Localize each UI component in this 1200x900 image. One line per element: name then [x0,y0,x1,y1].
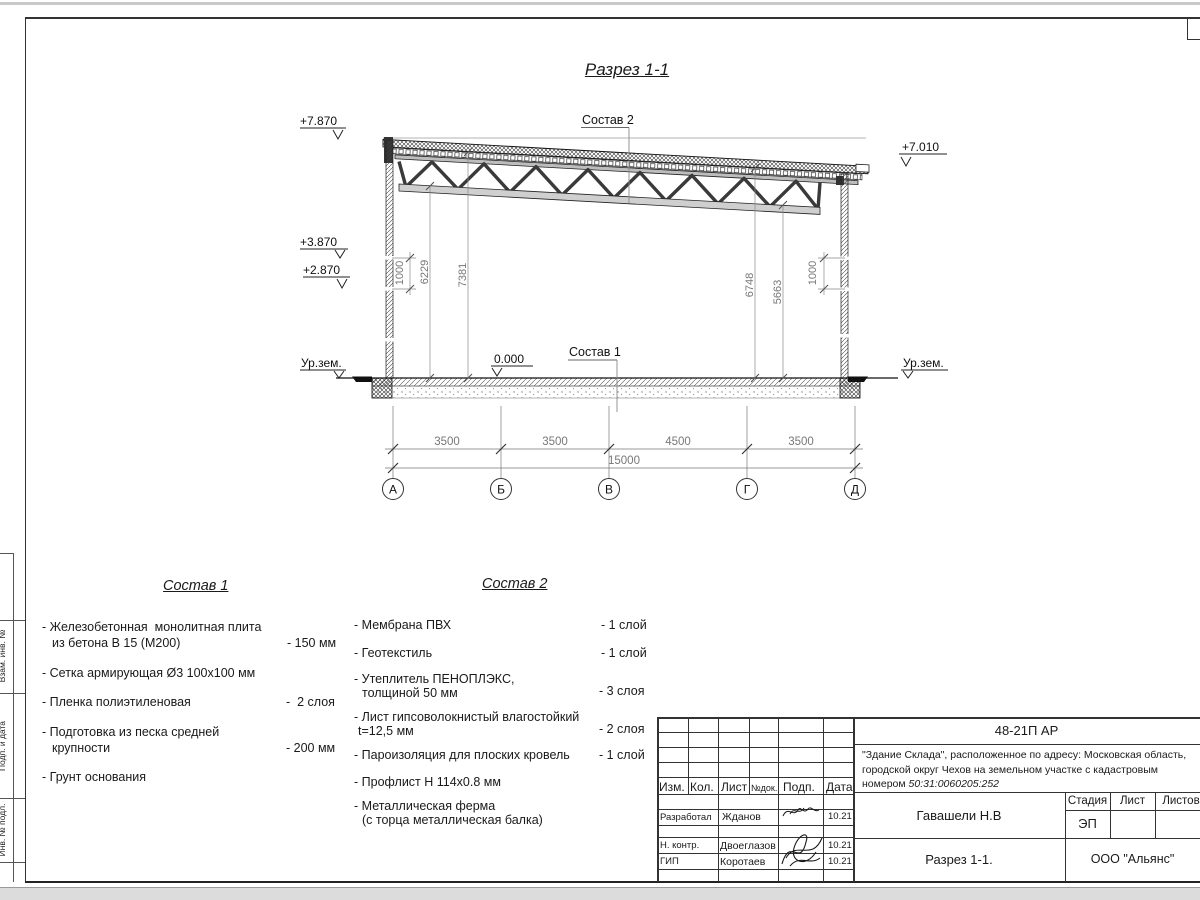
svg-text:1000: 1000 [394,261,406,285]
list-item: - Пароизоляция для плоских кровель [354,748,570,762]
list-item: - Пленка полиэтиленовая [42,695,191,709]
signature-razrabotal [780,802,822,822]
frame-top [25,17,1200,19]
svg-text:6229: 6229 [419,260,431,284]
side-label-inv: Инв. № подл. [0,800,9,860]
svg-text:0.000: 0.000 [494,352,524,366]
sostav1-heading: Состав 1 [163,578,228,595]
list-item: - Сетка армирующая Ø3 100x100 мм [42,666,255,680]
elevation-wall-mid: +2.870 [303,263,350,288]
stamp-name: Жданов [722,811,761,823]
svg-text:+7.870: +7.870 [300,114,337,128]
svg-text:+3.870: +3.870 [300,235,337,249]
list-item: - Грунт основания [42,770,146,784]
stamp-stage-label: Стадия [1065,795,1110,807]
stamp-doc-number: 48-21П АР [853,723,1200,738]
svg-text:3500: 3500 [434,436,460,448]
svg-text:+7.010: +7.010 [902,140,939,154]
list-item-value: - 3 слоя [599,684,644,698]
sostav2-heading: Состав 2 [482,576,547,593]
svg-text:5663: 5663 [772,280,784,304]
list-item: (с торца металлическая балка) [362,813,543,827]
side-column-line-5 [0,862,25,863]
list-item-value: - 2 слоя [286,695,335,709]
list-item: - Профлист Н 114х0.8 мм [354,775,501,789]
svg-text:15000: 15000 [608,455,640,467]
stamp-date: 10.21 [828,856,852,867]
elevation-roof-left: +7.870 [300,114,346,139]
stamp-role: Разработал [660,812,712,823]
list-item-value: - 2 слоя [599,722,644,736]
svg-text:Г: Г [744,483,751,497]
stamp-col-podp: Подп. [783,780,815,794]
svg-text:В: В [605,483,613,497]
svg-text:3500: 3500 [788,436,814,448]
svg-text:Ур.зем.: Ур.зем. [903,356,944,370]
project-line-2: городской округ Чехов на земельном участ… [862,763,1197,778]
list-item-value: - 1 слой [601,646,647,660]
stamp-project-description: "Здание Склада", расположенное по адресу… [862,748,1197,792]
svg-text:6748: 6748 [744,273,756,297]
svg-text:Ур.зем.: Ур.зем. [301,356,342,370]
ground-mark-right: Ур.зем. [901,356,948,378]
side-column-line-3 [0,693,25,694]
side-column-line-2 [0,620,25,621]
footing-flag-left [352,377,372,383]
list-item: - Лист гипсоволокнистый влагостойкий [354,710,579,724]
drawing-sheet: Взам. инв. № Подп. и дата Инв. № подл. Р… [0,0,1200,900]
side-label-vzam: Взам. инв. № [0,626,9,686]
stamp-chief-name: Гавашели Н.В [853,808,1065,823]
stamp-role: Н. контр. [660,840,699,851]
dim-1000-right: 1000 [807,252,845,295]
stamp-date: 10.21 [828,840,852,851]
svg-text:+2.870: +2.870 [303,263,340,277]
frame-left [25,17,26,882]
list-item: - Геотекстиль [354,646,432,660]
list-item-value: - 1 слой [601,618,647,632]
elevation-floor: 0.000 [491,352,533,376]
stamp-sheet-label: Лист [1110,795,1155,807]
list-item: t=12,5 мм [358,724,414,738]
floor-slab [372,378,860,386]
ground-mark-left: Ур.зем. [300,356,346,378]
side-label-podp: Подп. и дата [0,716,9,776]
stamp-col-kol: Кол. [690,780,714,794]
list-item-value: - 1 слой [599,748,645,762]
page-bottom-edge [0,887,1200,900]
side-column-line-1 [0,553,13,554]
svg-text:7381: 7381 [457,263,469,287]
roof-right-endcap [856,164,869,172]
frame-corner-box-left [1187,18,1188,39]
stamp-name: Двоеглазов [720,840,776,852]
footing-flag-right [848,377,868,383]
page-title: Разрез 1-1 [537,60,717,80]
svg-text:1000: 1000 [807,261,819,285]
list-item: - Железобетонная монолитная плита [42,620,261,634]
stamp-col-izm: Изм. [659,780,685,794]
svg-text:А: А [389,483,397,497]
svg-text:Состав 1: Состав 1 [569,345,621,359]
list-item-value: - 200 мм [286,741,335,755]
stamp-drawing-name: Разрез 1-1. [853,852,1065,867]
list-item: - Металлическая ферма [354,799,495,813]
svg-text:Б: Б [497,483,505,497]
side-column-line-4 [0,798,25,799]
svg-text:3500: 3500 [542,436,568,448]
axis-bubbles: А Б В Г Д [383,479,866,500]
right-wall [841,174,848,378]
section-drawing: Состав 2 Состав 1 +7.870 +3.870 +2.870 У… [280,95,970,530]
stamp-col-list: Лист [721,780,747,794]
stamp-date: 10.21 [828,811,852,822]
elevation-roof-right: +7.010 [899,140,947,166]
svg-text:Состав 2: Состав 2 [582,113,634,127]
side-column-divider [13,553,14,882]
signature-gip [776,828,828,872]
list-item: толщиной 50 мм [362,686,458,700]
svg-text:Д: Д [851,483,859,497]
cadastral-number: 50:31:0060205:252 [909,778,1000,790]
project-line-3: номером 50:31:0060205:252 [862,777,1197,792]
list-item: из бетона В 15 (М200) [52,636,180,650]
floor-end-block-left [372,378,392,398]
stamp-col-data: Дата [826,780,853,794]
frame-corner-box-bottom [1187,39,1200,40]
list-item: - Мембрана ПВХ [354,618,451,632]
stamp-role: ГИП [660,856,679,867]
stamp-sheets-label: Листов [1155,795,1200,807]
stamp-stage-value: ЭП [1065,816,1110,831]
project-line-1: "Здание Склада", расположенное по адресу… [862,748,1197,763]
list-item: крупности [52,741,110,755]
frame-bottom [25,881,1200,883]
right-wall-joint-3 [840,334,850,338]
list-item-value: - 150 мм [287,636,336,650]
page-top-edge [0,2,1200,5]
left-wall-joint-3 [385,338,395,342]
dim-1000-left: 1000 [392,252,416,295]
svg-text:4500: 4500 [665,436,691,448]
elevation-wall-top: +3.870 [300,235,348,258]
stamp-col-ndok: №док. [751,783,777,793]
truss-bottom-chord [399,184,820,214]
list-item: - Утеплитель ПЕНОПЛЭКС, [354,672,514,686]
floor-sand-layer [372,386,860,398]
list-item: - Подготовка из песка средней [42,725,219,739]
dim-chain: 3500 3500 4500 3500 15000 [385,406,863,478]
stamp-name: Коротаев [720,856,765,868]
stamp-company: ООО "Альянс" [1065,852,1200,866]
